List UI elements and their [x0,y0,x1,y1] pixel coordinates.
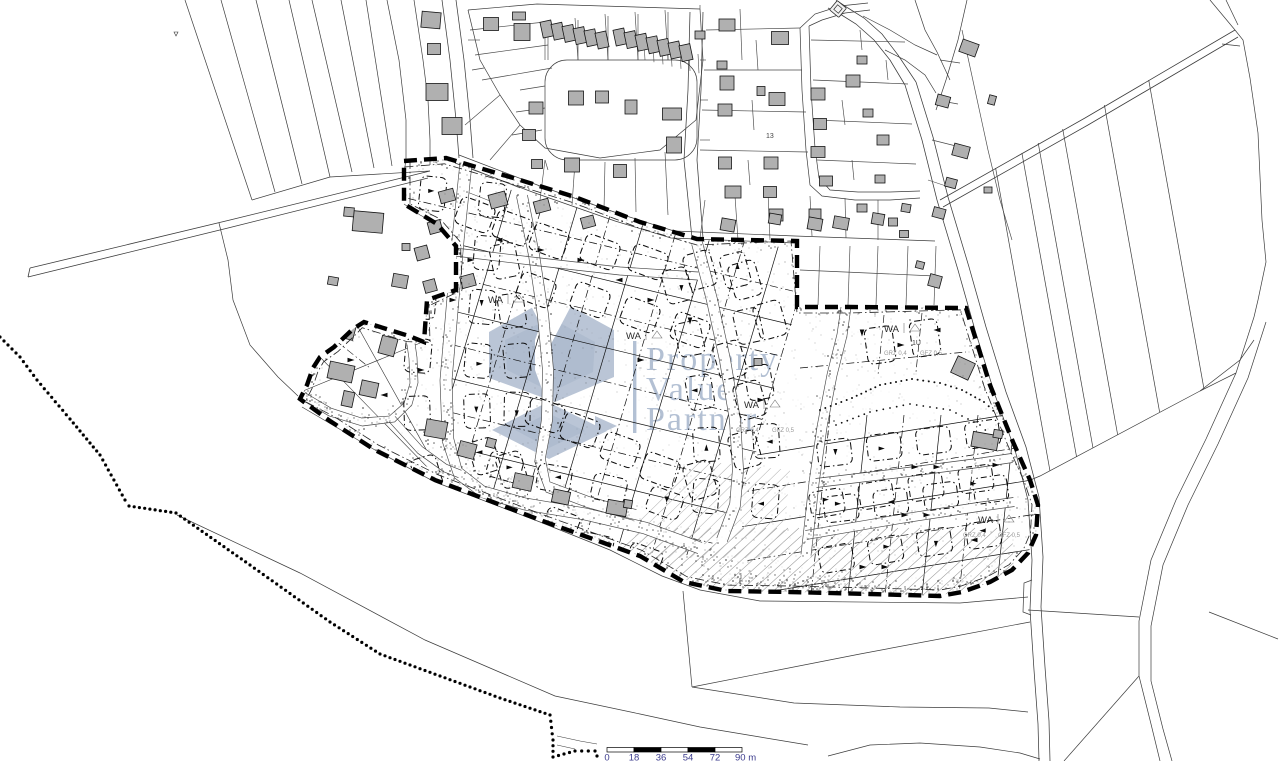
svg-text:90 m: 90 m [735,753,756,762]
svg-text:0: 0 [604,753,609,762]
svg-text:GRZ 0,4: GRZ 0,4 [736,428,759,434]
svg-text:GRZ 0,4: GRZ 0,4 [963,533,986,539]
svg-text:72: 72 [710,753,721,762]
svg-text:36: 36 [656,753,667,762]
svg-text:GFZ 0,5: GFZ 0,5 [920,351,943,357]
svg-text:GRZ 0,4: GRZ 0,4 [884,351,907,357]
svg-text:WA: WA [978,515,994,526]
svg-text:GFZ 0,5: GFZ 0,5 [998,533,1021,539]
svg-text:WA: WA [884,324,900,335]
svg-text:WA: WA [744,400,760,411]
svg-text:18: 18 [629,753,640,762]
svg-text:WA: WA [626,331,642,342]
svg-text:WA: WA [488,295,504,306]
svg-text:54: 54 [683,753,694,762]
svg-text:1U: 1U [912,340,921,347]
svg-text:GFZ 0,5: GFZ 0,5 [772,428,795,434]
svg-text:13: 13 [766,133,774,140]
